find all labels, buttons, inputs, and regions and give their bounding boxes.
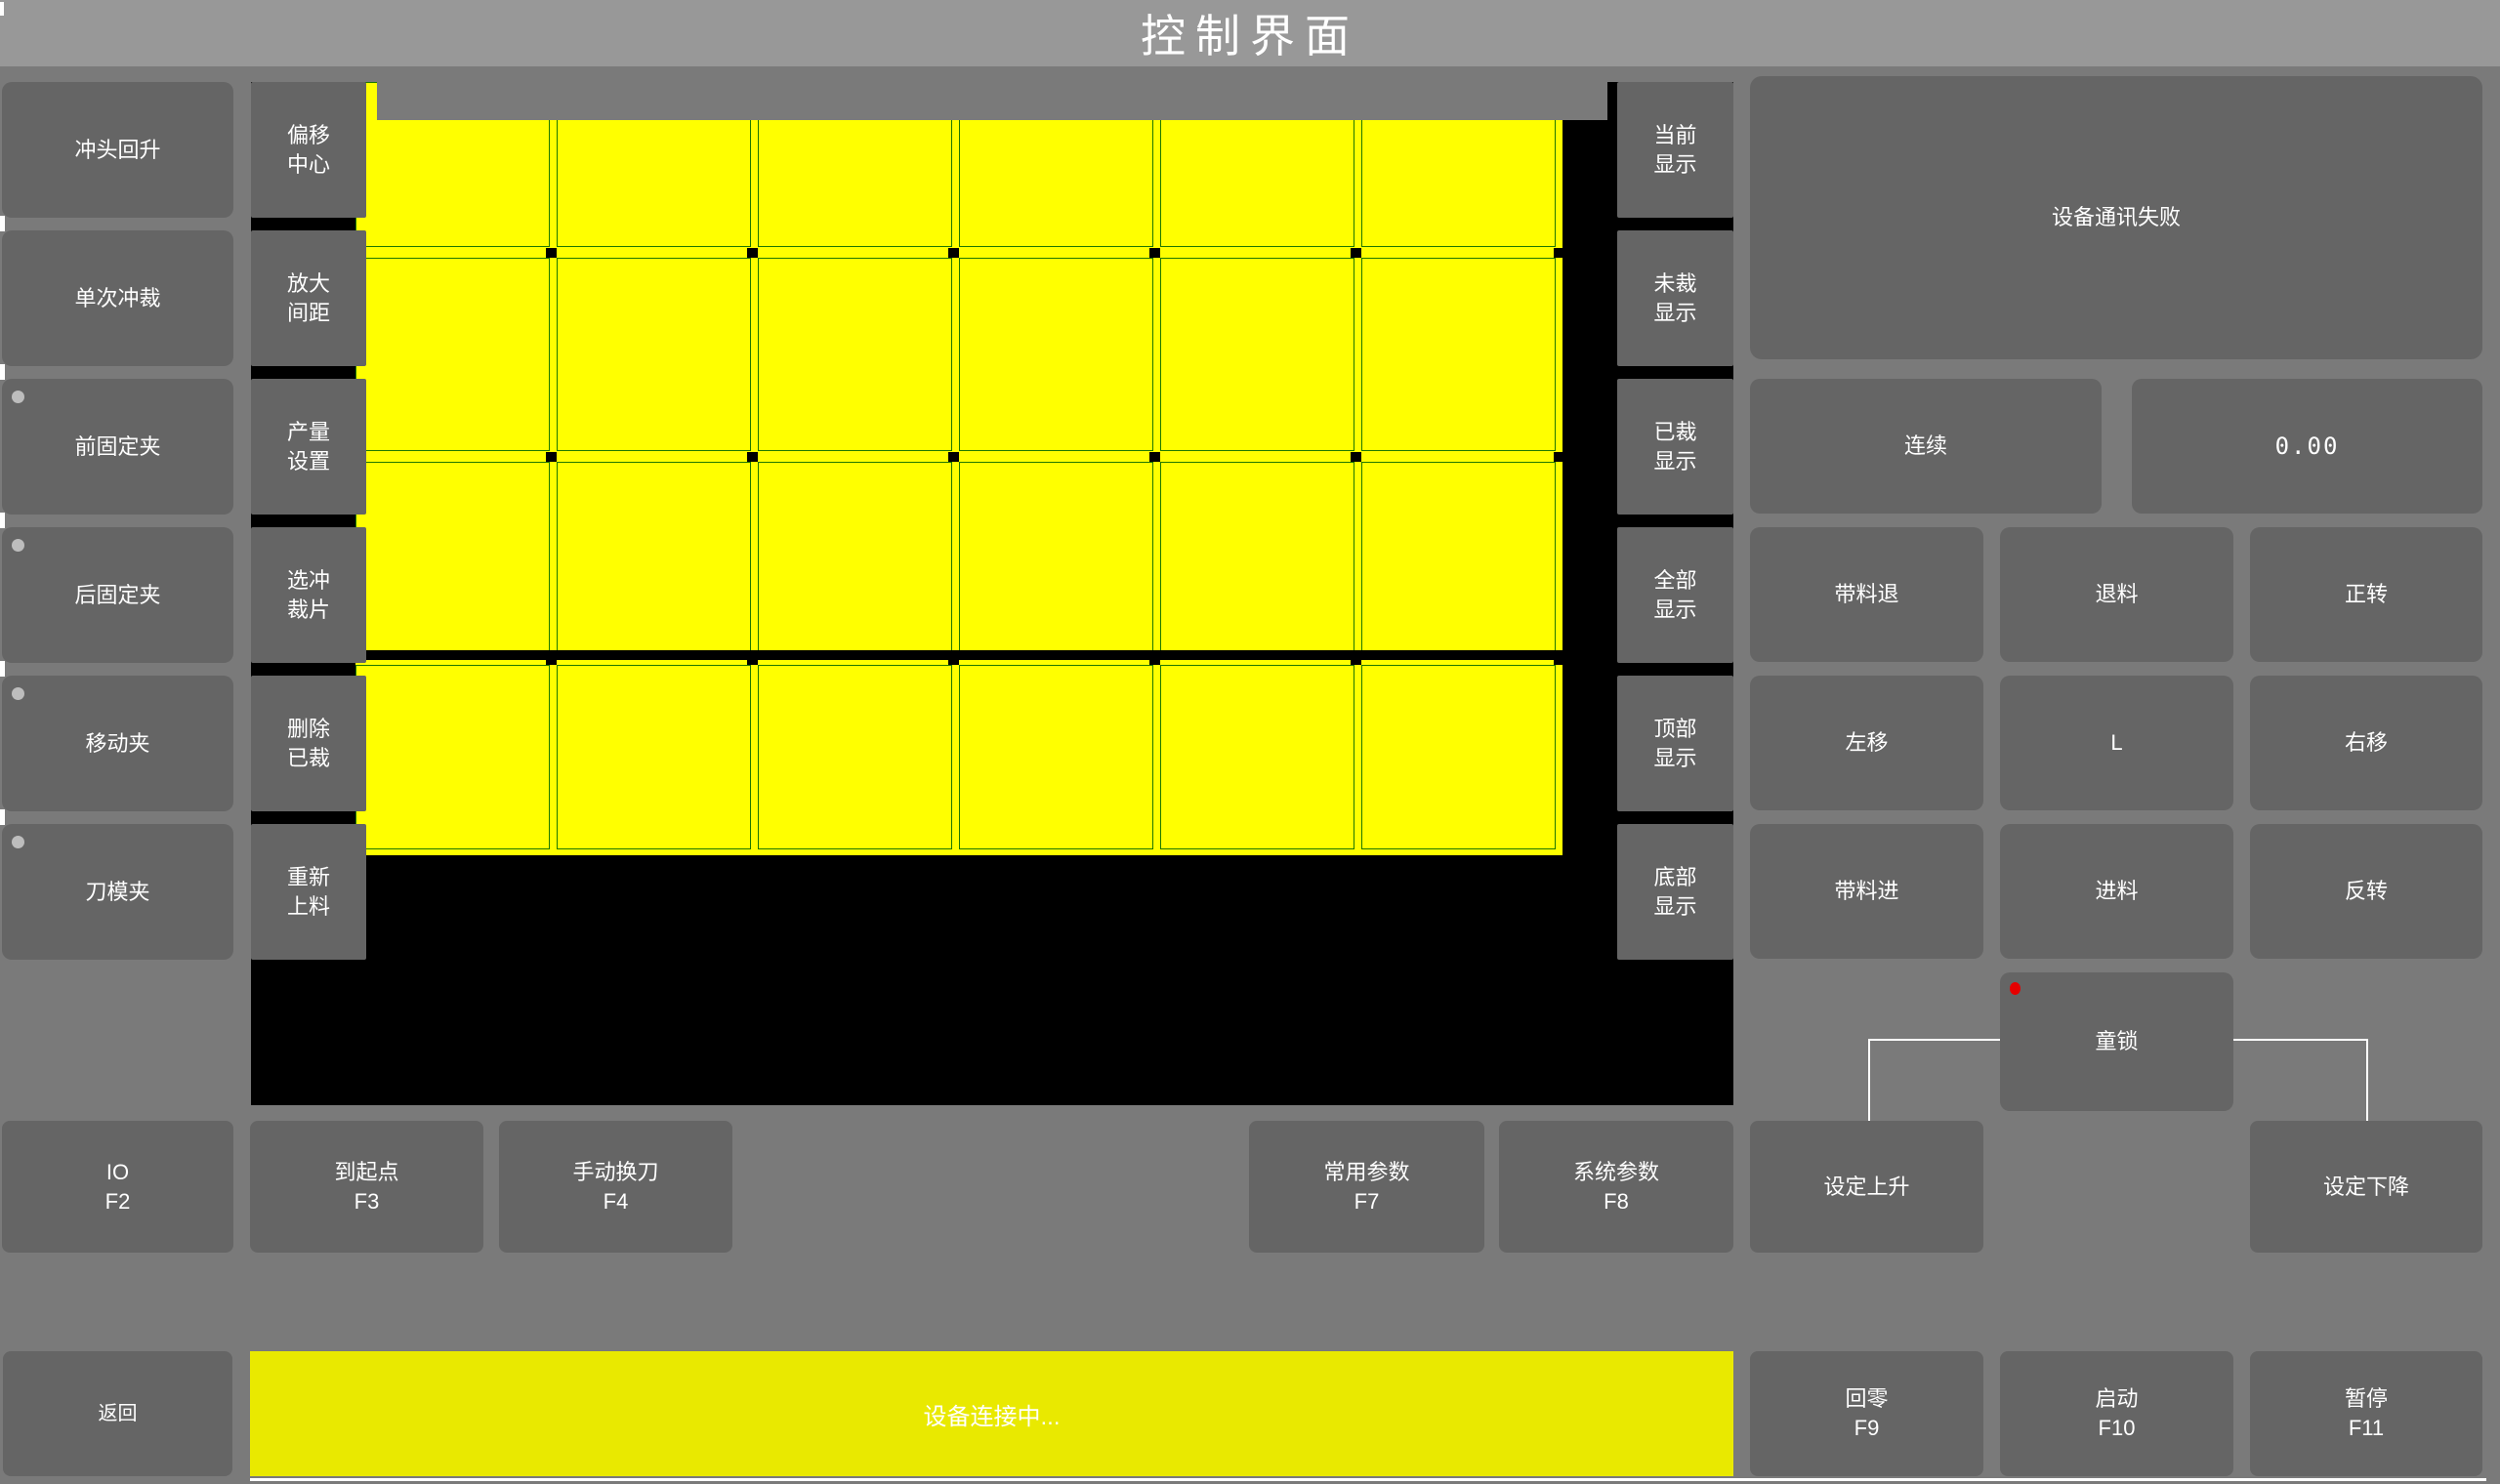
home-key: F9 [1854, 1414, 1880, 1443]
moving-clamp-button[interactable]: 移动夹 [2, 676, 233, 811]
uncut-display-line2: 显示 [1653, 299, 1696, 328]
sheet-piece[interactable] [1160, 258, 1354, 451]
offset-center-button[interactable]: 偏移 中心 [251, 82, 366, 218]
rear-clamp-indicator-dot [12, 539, 24, 552]
reload-material-line1: 重新 [287, 863, 330, 892]
edge-tick [0, 216, 5, 231]
child-lock-label: 童锁 [2095, 1027, 2138, 1056]
reverse-rotate-label: 反转 [2345, 877, 2388, 906]
rear-clamp-button[interactable]: 后固定夹 [2, 527, 233, 663]
all-display-button[interactable]: 全部 显示 [1617, 527, 1733, 663]
delete-cut-button[interactable]: 删除 已裁 [251, 676, 366, 811]
pause-f11-button[interactable]: 暂停 F11 [2250, 1351, 2482, 1476]
edge-tick [0, 809, 5, 825]
yield-settings-line1: 产量 [287, 418, 330, 447]
pause-label: 暂停 [2345, 1384, 2388, 1414]
tape-back-button[interactable]: 带料退 [1750, 527, 1983, 662]
delete-cut-line1: 删除 [287, 715, 330, 744]
bottom-display-line2: 显示 [1653, 892, 1696, 922]
punch-raise-button[interactable]: 冲头回升 [2, 82, 233, 218]
sheet-piece[interactable] [355, 462, 550, 654]
edge-tick [0, 364, 5, 380]
grid-intersection-mark [1149, 248, 1160, 258]
sheet-piece[interactable] [557, 665, 751, 849]
punch-raise-label: 冲头回升 [74, 136, 160, 165]
yield-settings-line2: 设置 [287, 447, 330, 476]
sheet-piece[interactable] [758, 258, 952, 451]
sheet-piece[interactable] [758, 665, 952, 849]
set-rise-button[interactable]: 设定上升 [1750, 1121, 1983, 1253]
cut-display-button[interactable]: 已裁 显示 [1617, 379, 1733, 515]
home-f9-button[interactable]: 回零 F9 [1750, 1351, 1983, 1476]
front-clamp-indicator-dot [12, 391, 24, 403]
set-rise-label: 设定上升 [1823, 1173, 1909, 1202]
common-params-key: F7 [1354, 1187, 1380, 1216]
bottom-display-button[interactable]: 底部 显示 [1617, 824, 1733, 960]
top-display-button[interactable]: 顶部 显示 [1617, 676, 1733, 811]
move-left-button[interactable]: 左移 [1750, 676, 1983, 810]
comm-status-message: 设备通讯失败 [2052, 203, 2181, 232]
grid-intersection-mark [1351, 452, 1361, 462]
value-display-text: 0.00 [2275, 432, 2340, 461]
enlarge-spacing-button[interactable]: 放大 间距 [251, 230, 366, 366]
offset-center-line1: 偏移 [287, 121, 330, 150]
origin-f3-button[interactable]: 到起点 F3 [250, 1121, 483, 1253]
sheet-edge-mark [1554, 248, 1563, 258]
front-clamp-button[interactable]: 前固定夹 [2, 379, 233, 515]
enlarge-spacing-line2: 间距 [287, 299, 330, 328]
forward-rotate-label: 正转 [2345, 580, 2388, 609]
io-label: IO [106, 1158, 129, 1187]
pause-key: F11 [2349, 1414, 2384, 1443]
grid-intersection-mark [948, 248, 959, 258]
grid-intersection-mark [1149, 452, 1160, 462]
current-display-button[interactable]: 当前 显示 [1617, 82, 1733, 218]
system-params-label: 系统参数 [1573, 1158, 1659, 1187]
connector-line [2233, 1039, 2366, 1041]
sheet-top-margin-band [377, 82, 1607, 120]
l-button-label: L [2110, 728, 2122, 758]
io-key: F2 [105, 1187, 131, 1216]
start-f10-button[interactable]: 启动 F10 [2000, 1351, 2233, 1476]
sheet-piece[interactable] [959, 665, 1153, 849]
cut-display-line1: 已裁 [1653, 418, 1696, 447]
grid-intersection-mark [948, 655, 959, 665]
origin-label: 到起点 [334, 1158, 398, 1187]
select-piece-line2: 裁片 [287, 596, 330, 625]
uncut-display-button[interactable]: 未裁 显示 [1617, 230, 1733, 366]
sheet-piece[interactable] [959, 462, 1153, 654]
sheet-piece[interactable] [959, 258, 1153, 451]
set-fall-button[interactable]: 设定下降 [2250, 1121, 2482, 1253]
io-f2-button[interactable]: IO F2 [2, 1121, 233, 1253]
delete-cut-line2: 已裁 [287, 744, 330, 773]
yield-settings-button[interactable]: 产量 设置 [251, 379, 366, 515]
connector-line [1868, 1039, 1870, 1121]
status-bar: 设备连接中... [250, 1351, 1733, 1476]
status-underline [250, 1478, 2486, 1481]
die-clamp-button[interactable]: 刀模夹 [2, 824, 233, 960]
sheet-piece[interactable] [1160, 462, 1354, 654]
top-display-line2: 显示 [1653, 744, 1696, 773]
sheet-piece[interactable] [557, 258, 751, 451]
select-piece-button[interactable]: 选冲 裁片 [251, 527, 366, 663]
value-display: 0.00 [2132, 379, 2482, 514]
moving-clamp-indicator-dot [12, 687, 24, 700]
sheet-piece[interactable] [557, 462, 751, 654]
sheet-edge-mark [1554, 452, 1563, 462]
enlarge-spacing-line1: 放大 [287, 269, 330, 299]
grid-intersection-mark [1351, 655, 1361, 665]
move-right-label: 右移 [2345, 728, 2388, 758]
grid-intersection-mark [747, 655, 758, 665]
current-display-line1: 当前 [1653, 121, 1696, 150]
bottom-display-line1: 底部 [1653, 863, 1696, 892]
cut-line [355, 650, 1562, 660]
manual-toolchange-f4-button[interactable]: 手动换刀 F4 [499, 1121, 732, 1253]
start-label: 启动 [2095, 1384, 2138, 1414]
offset-center-line2: 中心 [287, 150, 330, 180]
cut-display-line2: 显示 [1653, 447, 1696, 476]
uncut-display-line1: 未裁 [1653, 269, 1696, 299]
connector-line [1868, 1039, 2000, 1041]
all-display-line2: 显示 [1653, 596, 1696, 625]
die-clamp-label: 刀模夹 [85, 878, 149, 907]
edge-tick [0, 661, 5, 677]
die-clamp-indicator-dot [12, 836, 24, 848]
grid-intersection-mark [546, 452, 557, 462]
title-bar: 控制界面 [0, 0, 2500, 66]
grid-intersection-mark [747, 248, 758, 258]
set-fall-label: 设定下降 [2323, 1173, 2409, 1202]
moving-clamp-label: 移动夹 [85, 729, 149, 759]
origin-key: F3 [354, 1187, 380, 1216]
continuous-mode-button[interactable]: 连续 [1750, 379, 2102, 514]
tape-forward-button[interactable]: 带料进 [1750, 824, 1983, 959]
toolchange-label: 手动换刀 [572, 1158, 658, 1187]
front-clamp-label: 前固定夹 [74, 433, 160, 462]
reload-material-line2: 上料 [287, 892, 330, 922]
reverse-rotate-button[interactable]: 反转 [2250, 824, 2482, 959]
single-punch-button[interactable]: 单次冲裁 [2, 230, 233, 366]
child-lock-button[interactable]: 童锁 [2000, 972, 2233, 1111]
sheet-edge-mark [1554, 655, 1563, 665]
system-params-f8-button[interactable]: 系统参数 F8 [1499, 1121, 1733, 1253]
reload-material-button[interactable]: 重新 上料 [251, 824, 366, 960]
single-punch-label: 单次冲裁 [74, 284, 160, 313]
current-display-line2: 显示 [1653, 150, 1696, 180]
move-left-label: 左移 [1845, 728, 1888, 758]
start-key: F10 [2099, 1414, 2136, 1443]
continuous-mode-label: 连续 [1904, 432, 1947, 461]
all-display-line1: 全部 [1653, 566, 1696, 596]
unload-label: 退料 [2095, 580, 2138, 609]
home-label: 回零 [1845, 1384, 1888, 1414]
back-button[interactable]: 返回 [3, 1351, 232, 1476]
toolchange-key: F4 [604, 1187, 629, 1216]
corner-artifact [0, 2, 4, 16]
grid-intersection-mark [546, 248, 557, 258]
sheet-piece[interactable] [758, 462, 952, 654]
back-label: 返回 [99, 1399, 138, 1428]
sheet-piece[interactable] [1160, 665, 1354, 849]
control-screen: 控制界面 冲头回升 单次冲裁 前固定夹 后固定夹 移动夹 刀模夹 偏移 中心 放… [0, 0, 2500, 1484]
tape-forward-label: 带料进 [1834, 877, 1898, 906]
grid-intersection-mark [1149, 655, 1160, 665]
feed-label: 进料 [2095, 877, 2138, 906]
page-title: 控制界面 [1141, 1, 1359, 65]
sheet-piece[interactable] [355, 258, 550, 451]
unload-button[interactable]: 退料 [2000, 527, 2233, 662]
tape-back-label: 带料退 [1834, 580, 1898, 609]
edge-tick [0, 513, 5, 528]
grid-intersection-mark [747, 452, 758, 462]
feed-button[interactable]: 进料 [2000, 824, 2233, 959]
child-lock-alert-dot [2010, 982, 2021, 995]
rear-clamp-label: 后固定夹 [74, 581, 160, 610]
sheet-piece[interactable] [1361, 258, 1556, 451]
status-text: 设备连接中... [923, 1397, 1060, 1431]
system-params-key: F8 [1604, 1187, 1629, 1216]
grid-intersection-mark [948, 452, 959, 462]
common-params-label: 常用参数 [1323, 1158, 1409, 1187]
sheet-piece[interactable] [1361, 462, 1556, 654]
comm-status-box: 设备通讯失败 [1750, 76, 2482, 359]
connector-line [2366, 1039, 2368, 1121]
move-right-button[interactable]: 右移 [2250, 676, 2482, 810]
top-display-line1: 顶部 [1653, 715, 1696, 744]
l-button[interactable]: L [2000, 676, 2233, 810]
common-params-f7-button[interactable]: 常用参数 F7 [1249, 1121, 1484, 1253]
grid-intersection-mark [1351, 248, 1361, 258]
sheet-piece[interactable] [355, 665, 550, 849]
sheet-piece[interactable] [1361, 665, 1556, 849]
grid-intersection-mark [546, 655, 557, 665]
select-piece-line1: 选冲 [287, 566, 330, 596]
forward-rotate-button[interactable]: 正转 [2250, 527, 2482, 662]
